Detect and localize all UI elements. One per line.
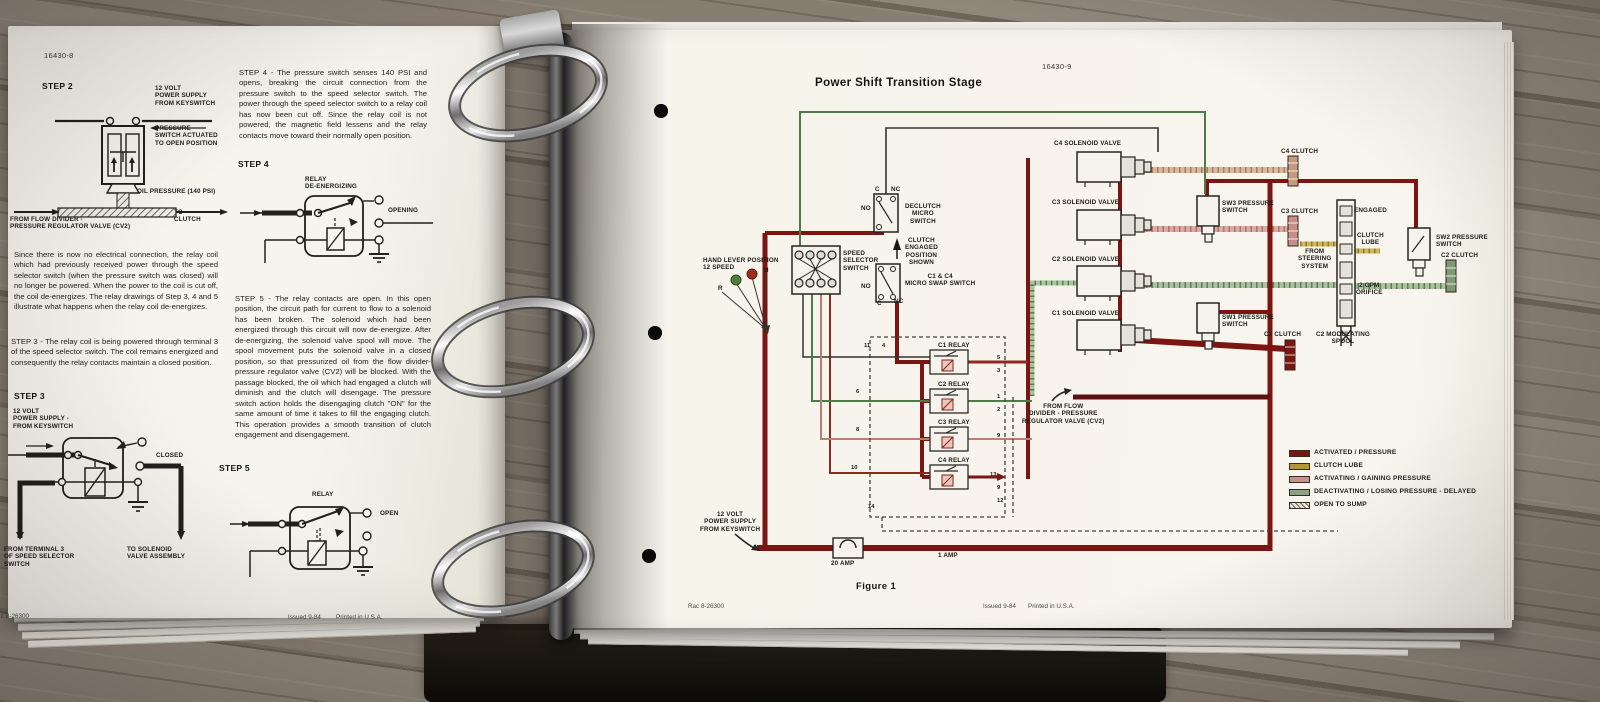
punch-hole bbox=[648, 326, 662, 340]
label-c2-modulating-spool: C2 MODULATING SPOOL bbox=[1316, 331, 1370, 346]
step5-open-label: OPEN bbox=[380, 510, 398, 517]
wire-number: 10 bbox=[851, 466, 857, 472]
label-sw3-pressure-switch: SW3 PRESSURE SWITCH bbox=[1222, 200, 1274, 215]
left-footer-printed: Printed in U.S.A. bbox=[336, 615, 383, 621]
label-sw2-pressure-switch: SW2 PRESSURE SWITCH bbox=[1436, 234, 1488, 249]
punch-hole bbox=[654, 104, 668, 118]
wire-number: 8 bbox=[856, 428, 859, 434]
legend-item: DEACTIVATING / LOSING PRESSURE - DELAYED bbox=[1289, 489, 1476, 496]
label-position-r: R bbox=[718, 285, 723, 292]
wire-number: 5 bbox=[997, 356, 1000, 362]
wire-number: 14 bbox=[868, 505, 874, 511]
label-declutch-no: NO bbox=[861, 205, 871, 212]
label-c1-solenoid-valve: C1 SOLENOID VALVE bbox=[1052, 310, 1119, 317]
label-position-h: H bbox=[764, 267, 769, 274]
label-from-flow-divider: FROM FLOW DIVIDER - PRESSURE REGULATOR V… bbox=[1022, 403, 1104, 425]
wire-number: 11 bbox=[864, 344, 870, 350]
label-declutch-micro-switch: DECLUTCH MICRO SWITCH bbox=[905, 203, 941, 225]
label-micro-swap-switch: C1 & C4 MICRO SWAP SWITCH bbox=[905, 273, 975, 288]
step5-relay-label: RELAY bbox=[312, 491, 334, 498]
label-c2-relay: C2 RELAY bbox=[938, 381, 970, 388]
legend-swatch-activated bbox=[1289, 450, 1310, 457]
paragraph-step4: STEP 4 - The pressure switch senses 140 … bbox=[239, 68, 427, 141]
label-c4-relay: C4 RELAY bbox=[938, 457, 970, 464]
label-1-amp: 1 AMP bbox=[938, 552, 958, 559]
label-speed-selector-switch: SPEED SELECTOR SWITCH bbox=[843, 250, 878, 272]
wire-number: 12 bbox=[997, 499, 1003, 505]
legend-label: ACTIVATED / PRESSURE bbox=[1314, 450, 1397, 457]
label-swap-c: C bbox=[877, 300, 882, 307]
right-footer-issued: Issued 9-84 bbox=[983, 604, 1016, 610]
right-page-number: 16430-9 bbox=[1042, 63, 1072, 71]
label-c2-clutch: C2 CLUTCH bbox=[1441, 252, 1478, 259]
label-engaged: ENGAGED bbox=[1354, 207, 1387, 214]
wire-number: 13 bbox=[990, 473, 996, 479]
label-declutch-nc: NC bbox=[891, 186, 900, 193]
wire-number: 9 bbox=[997, 486, 1000, 492]
legend-item: ACTIVATING / GAINING PRESSURE bbox=[1289, 476, 1431, 483]
label-swap-no: NO bbox=[861, 283, 871, 290]
step2-heading: STEP 2 bbox=[42, 82, 73, 91]
legend-label: ACTIVATING / GAINING PRESSURE bbox=[1314, 476, 1431, 483]
legend-item: ACTIVATED / PRESSURE bbox=[1289, 450, 1397, 457]
label-20-amp: 20 AMP bbox=[831, 560, 854, 567]
legend-swatch-deactivating bbox=[1289, 489, 1310, 496]
paragraph-step5: STEP 5 - The relay contacts are open. In… bbox=[235, 294, 431, 441]
wire-number: 2 bbox=[997, 408, 1000, 414]
step2-power-label: 12 VOLT POWER SUPPLY FROM KEYSWITCH bbox=[155, 85, 215, 107]
label-12v-power-supply: 12 VOLT POWER SUPPLY FROM KEYSWITCH bbox=[700, 511, 760, 533]
label-from-steering-system: FROM STEERING SYSTEM bbox=[1298, 248, 1331, 270]
step2-from-flow-label: FROM FLOW DIVIDER - PRESSURE REGULATOR V… bbox=[10, 216, 130, 231]
left-footer-code: c 8-26300 bbox=[1, 614, 29, 620]
page-edge-stack-right bbox=[1504, 42, 1514, 620]
step2-oil-pressure-label: OIL PRESSURE (140 PSI) bbox=[137, 188, 215, 195]
legend-swatch-clutch-lube bbox=[1289, 463, 1310, 470]
page-title: Power Shift Transition Stage bbox=[815, 78, 982, 90]
punch-hole bbox=[642, 549, 656, 563]
label-c4-clutch: C4 CLUTCH bbox=[1281, 148, 1318, 155]
legend-item: OPEN TO SUMP bbox=[1289, 502, 1367, 509]
label-c4-solenoid-valve: C4 SOLENOID VALVE bbox=[1054, 140, 1121, 147]
wire-number: 1 bbox=[997, 395, 1000, 401]
legend-item: CLUTCH LUBE bbox=[1289, 463, 1363, 470]
paragraph-step3: STEP 3 - The relay coil is being powered… bbox=[11, 337, 218, 368]
label-c1-clutch: C1 CLUTCH bbox=[1264, 331, 1301, 338]
binder-spine-bar bbox=[549, 32, 573, 640]
step4-opening-label: OPENING bbox=[388, 207, 418, 214]
step3-to-solenoid-label: TO SOLENOID VALVE ASSEMBLY bbox=[127, 546, 185, 561]
legend-label: OPEN TO SUMP bbox=[1314, 502, 1367, 509]
label-c1-relay: C1 RELAY bbox=[938, 342, 970, 349]
legend-label: DEACTIVATING / LOSING PRESSURE - DELAYED bbox=[1314, 489, 1476, 496]
label-c2-solenoid-valve: C2 SOLENOID VALVE bbox=[1052, 256, 1119, 263]
wire-number: 4 bbox=[882, 344, 885, 350]
step2-pressure-switch-label: PRESSURE SWITCH ACTUATED TO OPEN POSITIO… bbox=[155, 125, 218, 147]
wire-number: 6 bbox=[856, 390, 859, 396]
wire-number: 9 bbox=[997, 434, 1000, 440]
step3-from-terminal-label: FROM TERMINAL 3 OF SPEED SELECTOR SWITCH bbox=[4, 546, 74, 568]
right-footer-printed: Printed in U.S.A. bbox=[1028, 604, 1075, 610]
label-clutch-lube: CLUTCH LUBE bbox=[1357, 232, 1384, 247]
label-swap-nc: NC bbox=[894, 298, 903, 305]
label-sw1-pressure-switch: SW1 PRESSURE SWITCH bbox=[1222, 314, 1274, 329]
step3-power-label: 12 VOLT POWER SUPPLY - FROM KEYSWITCH bbox=[13, 408, 73, 430]
right-footer-code: Rac 8-26300 bbox=[688, 604, 724, 610]
wire-number: 3 bbox=[997, 369, 1000, 375]
figure-caption: Figure 1 bbox=[856, 582, 896, 592]
right-page bbox=[556, 30, 1512, 628]
step3-closed-label: CLOSED bbox=[156, 452, 183, 459]
step3-heading: STEP 3 bbox=[14, 392, 45, 401]
left-footer-issued: Issued 9-84 bbox=[288, 615, 321, 621]
label-declutch-c: C bbox=[875, 186, 880, 193]
left-page-number: 16430-8 bbox=[44, 52, 74, 60]
label-c3-clutch: C3 CLUTCH bbox=[1281, 208, 1318, 215]
step2-to-clutch-label: TO CLUTCH bbox=[174, 209, 201, 224]
label-c3-relay: C3 RELAY bbox=[938, 419, 970, 426]
step5-heading: STEP 5 bbox=[219, 464, 250, 473]
step4-heading: STEP 4 bbox=[238, 160, 269, 169]
step4-relay-label: RELAY DE-ENERGIZING bbox=[305, 176, 357, 191]
label-c3-solenoid-valve: C3 SOLENOID VALVE bbox=[1052, 199, 1119, 206]
label-clutch-engaged-position: CLUTCH ENGAGED POSITION SHOWN bbox=[905, 237, 938, 267]
label-2gpm-orifice: 2 GPM ORIFICE bbox=[1356, 282, 1383, 297]
paragraph-since: Since there is now no electrical connect… bbox=[14, 250, 218, 313]
legend-swatch-activating bbox=[1289, 476, 1310, 483]
legend-swatch-open-to-sump bbox=[1289, 502, 1310, 509]
legend-label: CLUTCH LUBE bbox=[1314, 463, 1363, 470]
